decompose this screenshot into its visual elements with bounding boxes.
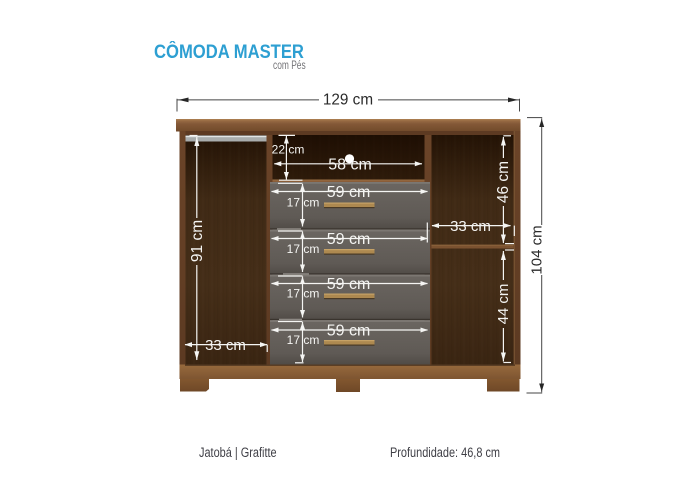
svg-text:17 cm: 17 cm bbox=[287, 196, 320, 210]
svg-text:44 cm: 44 cm bbox=[495, 284, 512, 325]
svg-text:59 cm: 59 cm bbox=[327, 231, 371, 248]
svg-text:22 cm: 22 cm bbox=[272, 143, 305, 157]
svg-text:46 cm: 46 cm bbox=[495, 161, 512, 203]
svg-text:91 cm: 91 cm bbox=[189, 220, 206, 262]
svg-text:17 cm: 17 cm bbox=[287, 333, 320, 347]
svg-text:58 cm: 58 cm bbox=[328, 156, 372, 173]
svg-text:104 cm: 104 cm bbox=[529, 225, 546, 274]
svg-text:17 cm: 17 cm bbox=[287, 287, 320, 301]
svg-text:33 cm: 33 cm bbox=[205, 337, 246, 354]
svg-text:59 cm: 59 cm bbox=[327, 184, 371, 201]
svg-text:59 cm: 59 cm bbox=[327, 276, 371, 293]
svg-text:59 cm: 59 cm bbox=[327, 323, 371, 340]
svg-text:33 cm: 33 cm bbox=[450, 218, 491, 235]
svg-text:129 cm: 129 cm bbox=[323, 92, 373, 109]
svg-text:17 cm: 17 cm bbox=[287, 242, 320, 256]
